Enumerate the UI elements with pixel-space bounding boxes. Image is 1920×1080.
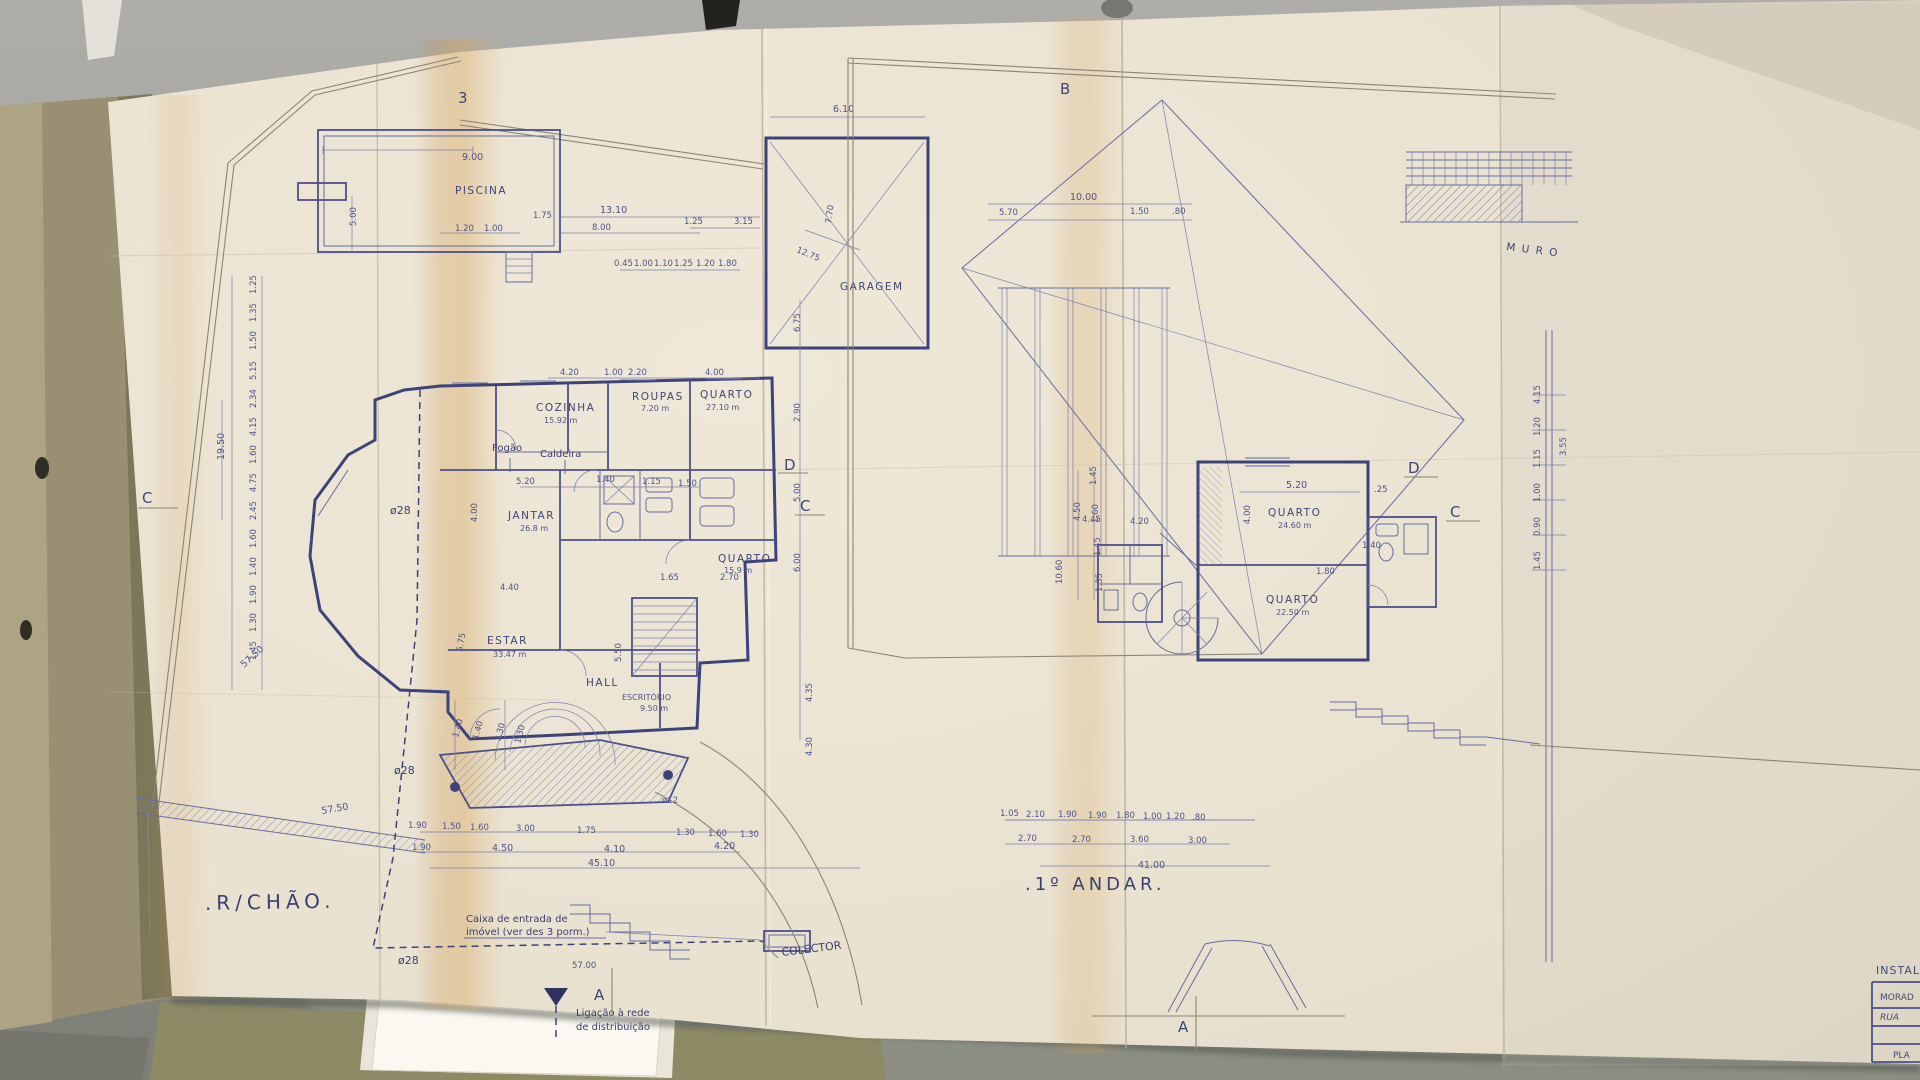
- dim-label: 1.00: [634, 259, 653, 269]
- dim-label: 6.10: [833, 104, 854, 115]
- section-marker-right-d: D: [1408, 459, 1420, 477]
- dim-label: 1.75: [533, 211, 552, 221]
- dim-label: 5.00: [349, 207, 359, 226]
- dim-label: 1.20: [696, 259, 715, 269]
- dim-label: 4.20: [560, 368, 579, 378]
- dim-label: 1.20: [455, 224, 474, 234]
- dim-label: 1.60: [470, 823, 489, 833]
- black-tab: [702, 0, 740, 30]
- dim-label: 1.15: [642, 477, 661, 487]
- dim-label: 45.10: [588, 858, 615, 869]
- dim-label: 1.25: [674, 259, 693, 269]
- room-area: 26.8 m: [520, 524, 548, 533]
- dim-label: 1.75: [577, 826, 596, 836]
- dim-label: 6.00: [793, 553, 803, 572]
- room-label-jantar: JANTAR: [507, 510, 555, 522]
- dim-label: 1.50: [678, 479, 697, 489]
- dim-label: 8.00: [592, 223, 611, 233]
- dim-label: 6.75: [793, 313, 803, 332]
- dim-label: 4.00: [470, 503, 480, 522]
- title-block-row2: RUA: [1880, 1013, 1899, 1023]
- room-label-quarto1: QUARTO: [1268, 507, 1321, 519]
- section-marker-bottom: A: [594, 986, 605, 1004]
- note-ligacao-line1: Ligação à rede: [576, 1007, 650, 1019]
- dim-label: .80: [1172, 207, 1186, 217]
- dim-label: 1.20: [1166, 812, 1185, 822]
- room-area: 24.60 m: [1278, 521, 1311, 530]
- dim-label: 1.00: [1143, 812, 1162, 822]
- dim-label: 0.90: [1533, 517, 1543, 536]
- dim-label: 1.40: [596, 475, 615, 485]
- dim-label: 1.50: [1130, 207, 1149, 217]
- binder-hole: [20, 620, 32, 640]
- dim-label: 1.50: [249, 331, 259, 350]
- dim-label: 2.70: [1018, 834, 1037, 844]
- dim-label: 1.05: [1000, 809, 1019, 819]
- equipment-caldeira: Caldeira: [540, 449, 581, 460]
- dim-label: 1.00: [604, 368, 623, 378]
- dim-label: 2.70: [1072, 835, 1091, 845]
- room-label-roupas: ROUPAS: [632, 391, 684, 403]
- fold-band: [1048, 18, 1128, 1053]
- room-area: 15.92 m: [544, 416, 577, 425]
- dim-label: 10.00: [1070, 192, 1097, 203]
- section-marker-left: C: [142, 489, 152, 507]
- porch-post: [663, 770, 673, 780]
- room-area: 22.50 m: [1276, 608, 1309, 617]
- dim-label: 1.45: [1089, 466, 1099, 485]
- equipment-fogao: Fogão: [492, 443, 522, 454]
- dim-label: 1.90: [408, 821, 427, 831]
- dim-label: 1.00: [1533, 483, 1543, 502]
- dim-label: 1.00: [484, 224, 503, 234]
- dim-label: 3.55: [1559, 437, 1569, 456]
- dim-label: 2.45: [249, 501, 259, 520]
- dim-label: 1.10: [654, 259, 673, 269]
- room-label-estar: ESTAR: [487, 635, 528, 647]
- dim-label: 4.45: [1082, 515, 1101, 525]
- pipe-label: ø28: [398, 954, 419, 967]
- room-label-quarto2: QUARTO: [1266, 594, 1319, 606]
- dim-label: 1.90: [1088, 811, 1107, 821]
- dim-label: 1.30: [740, 830, 759, 840]
- photo-of-blueprint: .R/CHÃO. PISCINA GARAGEM COZINHA 15.92 m…: [0, 0, 1920, 1080]
- dim-label: 1.60: [249, 529, 259, 548]
- room-label-garagem: GARAGEM: [840, 281, 904, 293]
- dim-label: 1.90: [412, 843, 431, 853]
- roof-slope-hatch: [1198, 467, 1222, 565]
- dim-label: 4.40: [500, 583, 519, 593]
- dim-label: 57.00: [572, 961, 596, 971]
- dim-label: 3.60: [1130, 835, 1149, 845]
- dim-label: 1.30: [249, 613, 259, 632]
- dim-label: 5.70: [999, 208, 1018, 218]
- dim-label: 5.20: [1286, 480, 1307, 491]
- dim-label: 1.40: [1362, 541, 1381, 551]
- section-marker-bottom-a: A: [1178, 1018, 1189, 1036]
- pipe-label: ø28: [394, 764, 415, 777]
- dim-label: 4.35: [805, 683, 815, 702]
- note-caixa-line2: imóvel (ver des 3 porm.): [466, 926, 590, 938]
- dim-label: 4.30: [805, 737, 815, 756]
- dim-label: 4.00: [705, 368, 724, 378]
- dim-label: 1.80: [1116, 811, 1135, 821]
- section-marker-right: D: [784, 456, 796, 474]
- first-floor-title: .1º ANDAR.: [1025, 874, 1166, 895]
- ground-floor-title: .R/CHÃO.: [205, 889, 336, 915]
- porch-post: [450, 782, 460, 792]
- title-block-header: INSTAL: [1876, 964, 1920, 977]
- note-ligacao-line2: de distribuição: [576, 1022, 650, 1033]
- dim-label: 4.15: [249, 417, 259, 436]
- dim-label: 3.00: [516, 824, 535, 834]
- room-area: 7.20 m: [641, 404, 669, 413]
- dim-label: 1.45: [1533, 551, 1543, 570]
- room-label-cozinha: COZINHA: [536, 402, 595, 414]
- dim-label: 4.50: [492, 843, 513, 854]
- dim-label: 19.50: [216, 433, 227, 460]
- pipe-label: ø28: [390, 504, 411, 517]
- dim-label: 2.34: [249, 389, 259, 408]
- dim-label: 1.15: [1533, 449, 1543, 468]
- dim-label: 1.25: [249, 275, 259, 294]
- dim-label: 1.45: [1093, 537, 1103, 556]
- section-marker-top: 3: [458, 89, 468, 107]
- dim-label: .80: [1192, 813, 1206, 823]
- dim-label: 4.10: [604, 844, 625, 855]
- dim-label: 1.90: [1058, 810, 1077, 820]
- dim-label: 13.10: [600, 205, 627, 216]
- section-marker-right-c: C: [1450, 503, 1460, 521]
- dim-label: 1.65: [660, 573, 679, 583]
- dim-label: 2.70: [720, 573, 739, 583]
- dim-label: 9.00: [462, 152, 483, 163]
- room-area: 33.47 m: [493, 650, 526, 659]
- dim-label: 4.20: [714, 841, 735, 852]
- dim-label: 1.40: [249, 557, 259, 576]
- dim-label: 1.35: [249, 303, 259, 322]
- dim-label: 5.20: [516, 477, 535, 487]
- room-area: 9.50 m: [640, 704, 668, 713]
- room-label-quarto-mid: QUARTO: [718, 553, 771, 565]
- dim-label: 1.20: [1533, 417, 1543, 436]
- dim-label: 1.80: [718, 259, 737, 269]
- dim-label: 4.20: [1130, 517, 1149, 527]
- blueprint-paper: [108, 0, 1920, 1066]
- note-caixa-line1: Caixa de entrada de: [466, 914, 568, 925]
- dim-label: 10.60: [1055, 560, 1065, 584]
- room-label-quarto-top: QUARTO: [700, 389, 753, 401]
- binder-hole: [35, 457, 49, 479]
- dim-label: 1.80: [1316, 567, 1335, 577]
- dim-label: 1.25: [684, 217, 703, 227]
- pipe-label: ø12: [662, 796, 678, 806]
- dim-label: 5.50: [614, 643, 624, 662]
- dim-label: 4.75: [249, 473, 259, 492]
- dim-label: 4.15: [1533, 385, 1543, 404]
- title-block-row1: MORAD: [1880, 993, 1914, 1003]
- dim-label: 1.90: [249, 585, 259, 604]
- dim-label: 0.45: [614, 259, 633, 269]
- dim-label: 1.35: [1095, 573, 1105, 592]
- room-label-escritorio: ESCRITÓRIO: [622, 691, 671, 702]
- dim-label: 4.00: [1243, 505, 1253, 524]
- dim-label: 1.50: [442, 822, 461, 832]
- dim-label: 2.90: [793, 403, 803, 422]
- dim-label: 41.00: [1138, 860, 1165, 871]
- dim-label: 3.00: [1188, 836, 1207, 846]
- dim-label: 3.15: [734, 217, 753, 227]
- dim-label: 1.60: [249, 445, 259, 464]
- dim-label: 5.15: [249, 361, 259, 380]
- room-area: 27.10 m: [706, 403, 739, 412]
- dim-label: 2.10: [1026, 810, 1045, 820]
- section-marker-left-c: C: [800, 497, 810, 515]
- dim-label: 1.30: [676, 828, 695, 838]
- dim-label: 2.20: [628, 368, 647, 378]
- title-block-row3: PLA: [1893, 1051, 1911, 1061]
- section-marker-top-b: B: [1060, 80, 1070, 98]
- room-label-hall: HALL: [586, 677, 619, 689]
- room-label-piscina: PISCINA: [455, 185, 507, 197]
- dim-label: .25: [1374, 485, 1388, 495]
- dim-label: 1.60: [708, 829, 727, 839]
